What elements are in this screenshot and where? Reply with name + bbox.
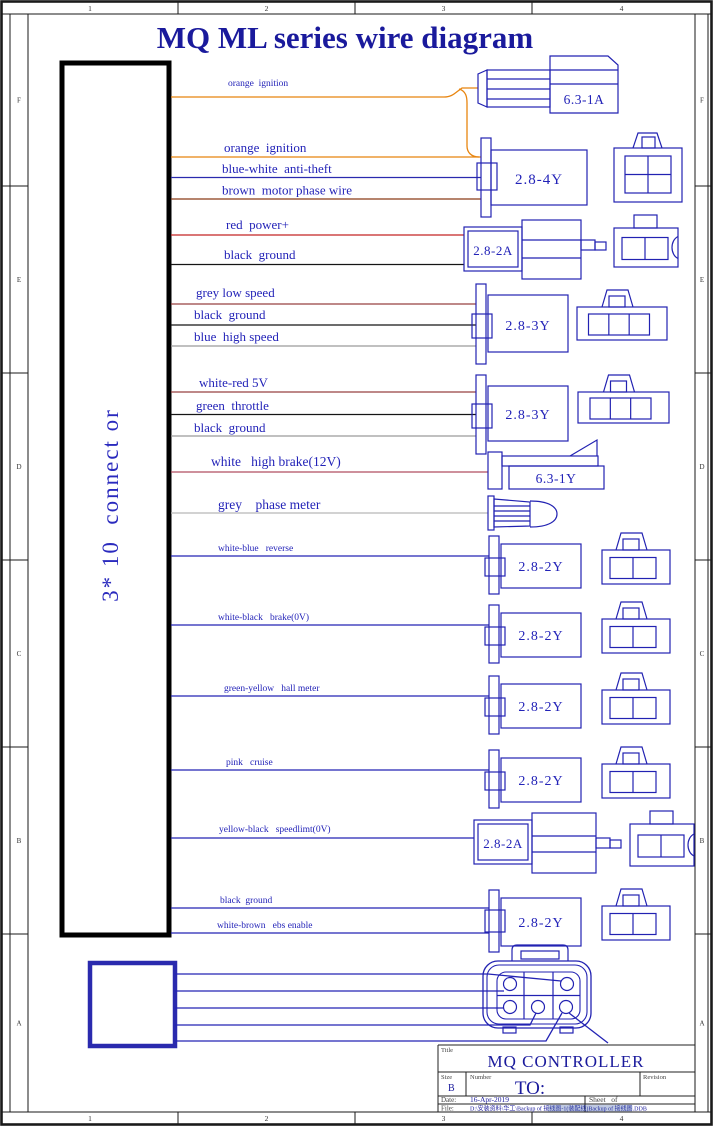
connector-label: 2.8-2Y bbox=[518, 629, 563, 644]
wire-label: pink cruise bbox=[226, 758, 273, 768]
ruler-row-left: F bbox=[17, 97, 21, 105]
title-block: TitleMQ CONTROLLERSizeBNumberTO:Revision… bbox=[438, 1045, 695, 1113]
wire-label: white-brown ebs enable bbox=[217, 921, 313, 931]
size-value: B bbox=[448, 1083, 455, 1094]
connector-label: 6.3-1Y bbox=[536, 471, 577, 486]
ruler-row-left: A bbox=[16, 1020, 21, 1028]
mate-icon-2A bbox=[630, 811, 694, 866]
wire-label: green throttle bbox=[196, 398, 269, 413]
main-connector: 3* 10 connect or bbox=[62, 63, 169, 935]
wire-label: grey phase meter bbox=[218, 497, 321, 512]
ruler-row-right: E bbox=[700, 276, 704, 284]
connector-6-3-1Y: 6.3-1Y bbox=[488, 440, 604, 489]
connector-2-8-2Y-reverse: 2.8-2Y bbox=[485, 533, 670, 594]
mate-icon-2Y bbox=[602, 889, 670, 940]
wire-group-2: orange ignition bbox=[171, 140, 481, 157]
ruler-column-top: 2 bbox=[265, 4, 269, 13]
wire-group-3: blue-white anti-theft bbox=[171, 161, 481, 178]
mate-icon-2Y bbox=[602, 533, 670, 584]
wire-label: black ground bbox=[194, 307, 266, 322]
ruler-row-right: D bbox=[699, 463, 704, 471]
wire-label: white-blue reverse bbox=[218, 544, 293, 554]
file-path-highlight bbox=[548, 1105, 632, 1112]
wire-label: white-red 5V bbox=[199, 375, 269, 390]
connector-2-8-2Y-brake: 2.8-2Y bbox=[485, 602, 670, 663]
ruler-row-right: A bbox=[699, 1020, 704, 1028]
wire-label: black ground bbox=[220, 896, 272, 906]
ruler-row-right: F bbox=[700, 97, 704, 105]
wire-jumper bbox=[459, 89, 479, 157]
wire-diagram-canvas: 11223344FFEEDDCCBBAAMQ ML series wire di… bbox=[0, 0, 713, 1126]
ruler-row-left: D bbox=[16, 463, 21, 471]
wire-label: yellow-black speedlimt(0V) bbox=[219, 824, 331, 835]
ruler-column-top: 1 bbox=[88, 4, 92, 13]
mate-icon-2A bbox=[614, 215, 678, 267]
connector-2-8-2A-speedlimit: 2.8-2A bbox=[474, 811, 694, 873]
connector-label: 2.8-2A bbox=[483, 836, 523, 851]
connector-2-8-2Y-cruise: 2.8-2Y bbox=[485, 747, 670, 808]
connector-2-8-4Y: 2.8-4Y bbox=[477, 133, 682, 217]
connector-label: 2.8-3Y bbox=[505, 319, 550, 334]
wire-label: red power+ bbox=[226, 217, 289, 232]
connector-label: 2.8-4Y bbox=[515, 172, 563, 188]
wire-line bbox=[171, 88, 478, 97]
wire-group-20: black ground bbox=[171, 896, 489, 908]
connector-label: 6.3-1A bbox=[564, 92, 605, 107]
wire-group-8: black ground bbox=[171, 307, 476, 325]
mate-icon-3Y bbox=[577, 290, 667, 340]
size-label: Size bbox=[441, 1074, 452, 1081]
file-label: File: bbox=[441, 1105, 454, 1113]
mate-icon-2Y bbox=[602, 673, 670, 724]
six-pin-connector bbox=[483, 945, 591, 1033]
ruler-row-left: C bbox=[17, 650, 22, 658]
mate-icon-3Y bbox=[578, 375, 669, 423]
wire-group-21: white-brown ebs enable bbox=[171, 921, 489, 933]
wire-label: green-yellow hall meter bbox=[224, 684, 320, 694]
ruler-column-bottom: 2 bbox=[265, 1114, 269, 1123]
number-label: Number bbox=[470, 1074, 492, 1081]
main-connector-label: 3* 10 connect or bbox=[98, 408, 123, 602]
wire-group-4: brown motor phase wire bbox=[171, 183, 481, 200]
wire-group-14: grey phase meter bbox=[171, 497, 488, 513]
mate-icon-4Y bbox=[614, 133, 682, 202]
wire-label: orange ignition bbox=[228, 79, 288, 89]
connector-2-8-3Y-speed: 2.8-3Y bbox=[472, 284, 667, 364]
wire-label: white high brake(12V) bbox=[211, 454, 341, 469]
date-value: 16-Apr-2019 bbox=[470, 1095, 509, 1104]
connector-2-8-3Y-throttle: 2.8-3Y bbox=[472, 375, 669, 454]
wire-group-13: white high brake(12V) bbox=[171, 454, 488, 472]
mate-icon-2Y bbox=[602, 747, 670, 798]
connector-label: 2.8-2Y bbox=[518, 700, 563, 715]
mate-icon-2Y bbox=[602, 602, 670, 653]
wire-group-11: green throttle bbox=[171, 398, 476, 415]
ruler-row-right: B bbox=[700, 837, 705, 845]
ruler-column-bottom: 1 bbox=[88, 1114, 92, 1123]
ruler-row-left: E bbox=[17, 276, 21, 284]
connector-2-8-2A-power: 2.8-2A bbox=[464, 215, 678, 279]
connector-2-8-2Y-ebs: 2.8-2Y bbox=[485, 889, 670, 952]
sheet-label: Sheet of bbox=[589, 1095, 618, 1104]
date-label: Date: bbox=[441, 1096, 456, 1104]
wire-label: blue high speed bbox=[194, 329, 279, 344]
wire-group-9: blue high speed bbox=[171, 329, 476, 346]
ruler-column-bottom: 3 bbox=[442, 1114, 446, 1123]
page-title: MQ ML series wire diagram bbox=[157, 20, 534, 55]
wire-group-7: grey low speed bbox=[171, 285, 476, 304]
wire-label: grey low speed bbox=[196, 285, 275, 300]
title-label: Title bbox=[441, 1047, 453, 1054]
wire-label: blue-white anti-theft bbox=[222, 161, 332, 176]
ruler-row-right: C bbox=[700, 650, 705, 658]
revision-label: Revision bbox=[643, 1074, 667, 1081]
titleblock-title: MQ CONTROLLER bbox=[487, 1052, 644, 1071]
wire-label: orange ignition bbox=[224, 140, 307, 155]
connector-label: 2.8-2A bbox=[473, 243, 513, 258]
wire-label: white-black brake(0V) bbox=[218, 612, 309, 623]
wire-group-19: yellow-black speedlimt(0V) bbox=[171, 824, 474, 838]
wire-group-10: white-red 5V bbox=[171, 375, 476, 392]
wire-group-6: black ground bbox=[171, 247, 464, 265]
wire-group-17: green-yellow hall meter bbox=[171, 684, 489, 696]
wire-group-16: white-black brake(0V) bbox=[171, 612, 489, 625]
page-title-text: MQ ML series wire diagram bbox=[157, 20, 534, 55]
connector-2-8-2Y-hall: 2.8-2Y bbox=[485, 673, 670, 734]
connector-6-3-1A: 6.3-1A bbox=[478, 56, 618, 113]
bullet-terminal bbox=[488, 496, 557, 530]
wire-group-1: orange ignition bbox=[171, 79, 479, 157]
schematic-sheet: 11223344FFEEDDCCBBAAMQ ML series wire di… bbox=[0, 0, 713, 1126]
connector-label: 2.8-2Y bbox=[518, 916, 563, 931]
wire-group-5: red power+ bbox=[171, 217, 464, 235]
wire-group-12: black ground bbox=[171, 420, 476, 436]
ruler-column-bottom: 4 bbox=[620, 1114, 624, 1123]
connector-label: 2.8-2Y bbox=[518, 774, 563, 789]
bottom-assembly bbox=[90, 945, 608, 1046]
ruler-column-top: 3 bbox=[442, 4, 446, 13]
wire-group-15: white-blue reverse bbox=[171, 544, 489, 556]
wire-label: black ground bbox=[194, 420, 266, 435]
ruler-column-top: 4 bbox=[620, 4, 624, 13]
wire-group-18: pink cruise bbox=[171, 758, 489, 770]
ruler-row-left: B bbox=[17, 837, 22, 845]
wire-label: black ground bbox=[224, 247, 296, 262]
connector-label: 2.8-3Y bbox=[505, 408, 550, 423]
wire-label: brown motor phase wire bbox=[222, 183, 352, 198]
connector-label: 2.8-2Y bbox=[518, 560, 563, 575]
number-value: TO: bbox=[515, 1078, 545, 1099]
